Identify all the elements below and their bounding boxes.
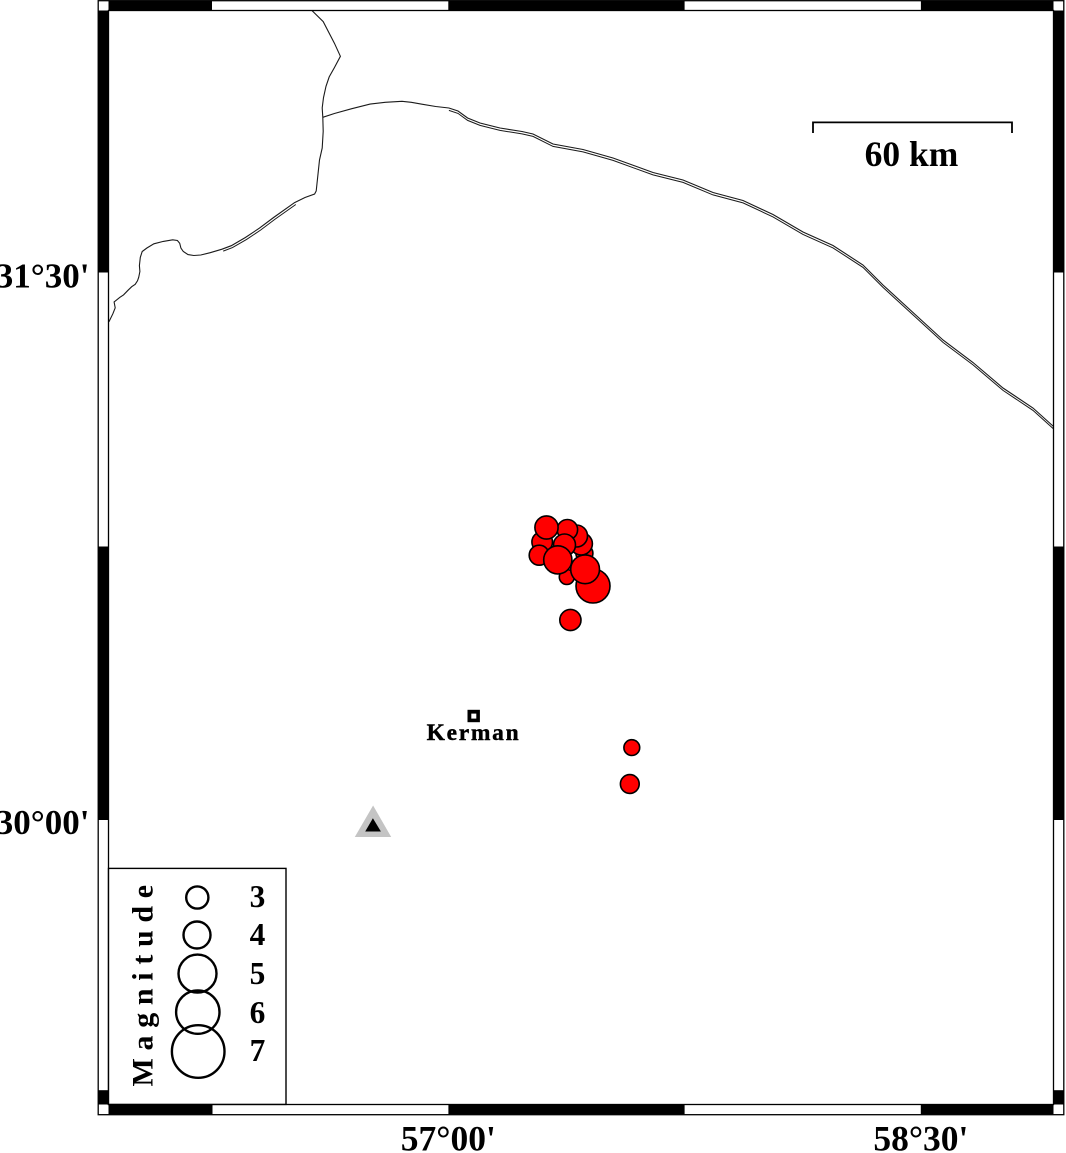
svg-text:7: 7 (250, 1033, 266, 1068)
svg-text:5: 5 (250, 956, 266, 991)
svg-text:58°30': 58°30' (873, 1119, 968, 1153)
svg-text:60 km: 60 km (865, 134, 959, 174)
svg-text:4: 4 (250, 917, 266, 952)
svg-text:Magnitude: Magnitude (127, 877, 160, 1086)
svg-text:31°30': 31°30' (0, 257, 90, 296)
svg-text:6: 6 (250, 995, 266, 1030)
svg-text:3: 3 (250, 879, 266, 914)
svg-text:30°00': 30°00' (0, 803, 90, 842)
svg-text:57°00': 57°00' (401, 1119, 496, 1153)
svg-text:Kerman: Kerman (427, 720, 521, 746)
